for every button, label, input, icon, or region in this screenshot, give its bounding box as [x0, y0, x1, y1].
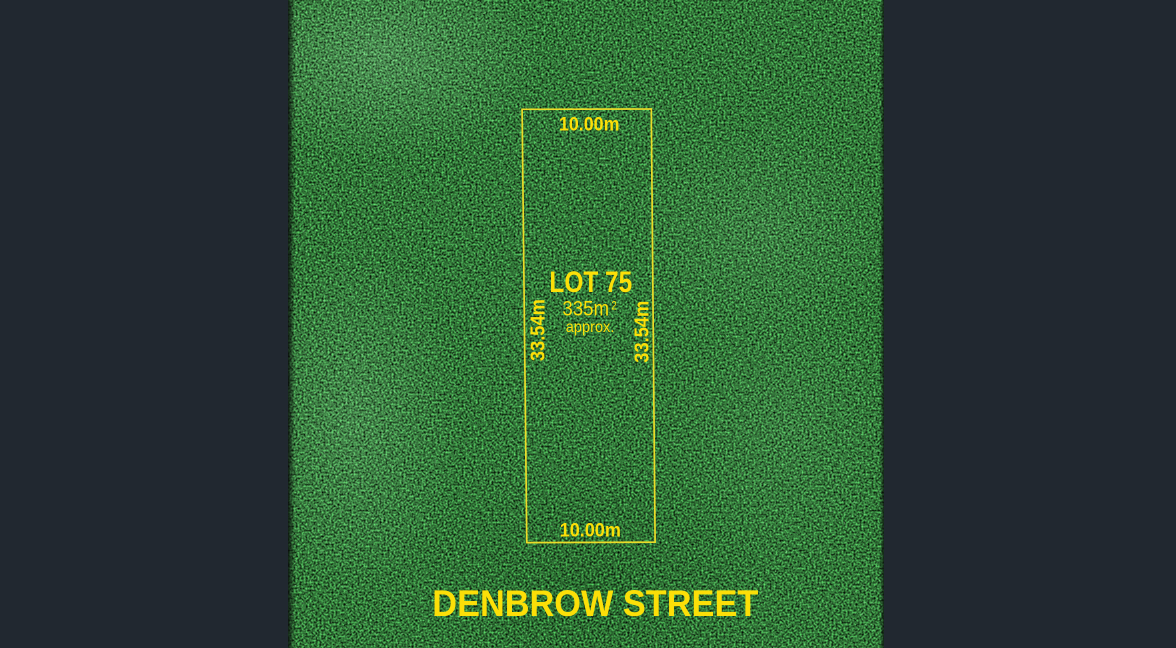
svg-text:10.00m: 10.00m [559, 115, 620, 136]
svg-text:2: 2 [612, 299, 617, 313]
svg-text:10.00m: 10.00m [560, 521, 621, 542]
svg-text:33.54m: 33.54m [632, 301, 654, 363]
svg-text:33.54m: 33.54m [528, 299, 550, 361]
svg-text:DENBROW STREET: DENBROW STREET [432, 583, 758, 624]
svg-text:335m: 335m [562, 297, 609, 321]
svg-text:LOT 75: LOT 75 [549, 266, 632, 299]
svg-text:approx.: approx. [566, 319, 615, 336]
